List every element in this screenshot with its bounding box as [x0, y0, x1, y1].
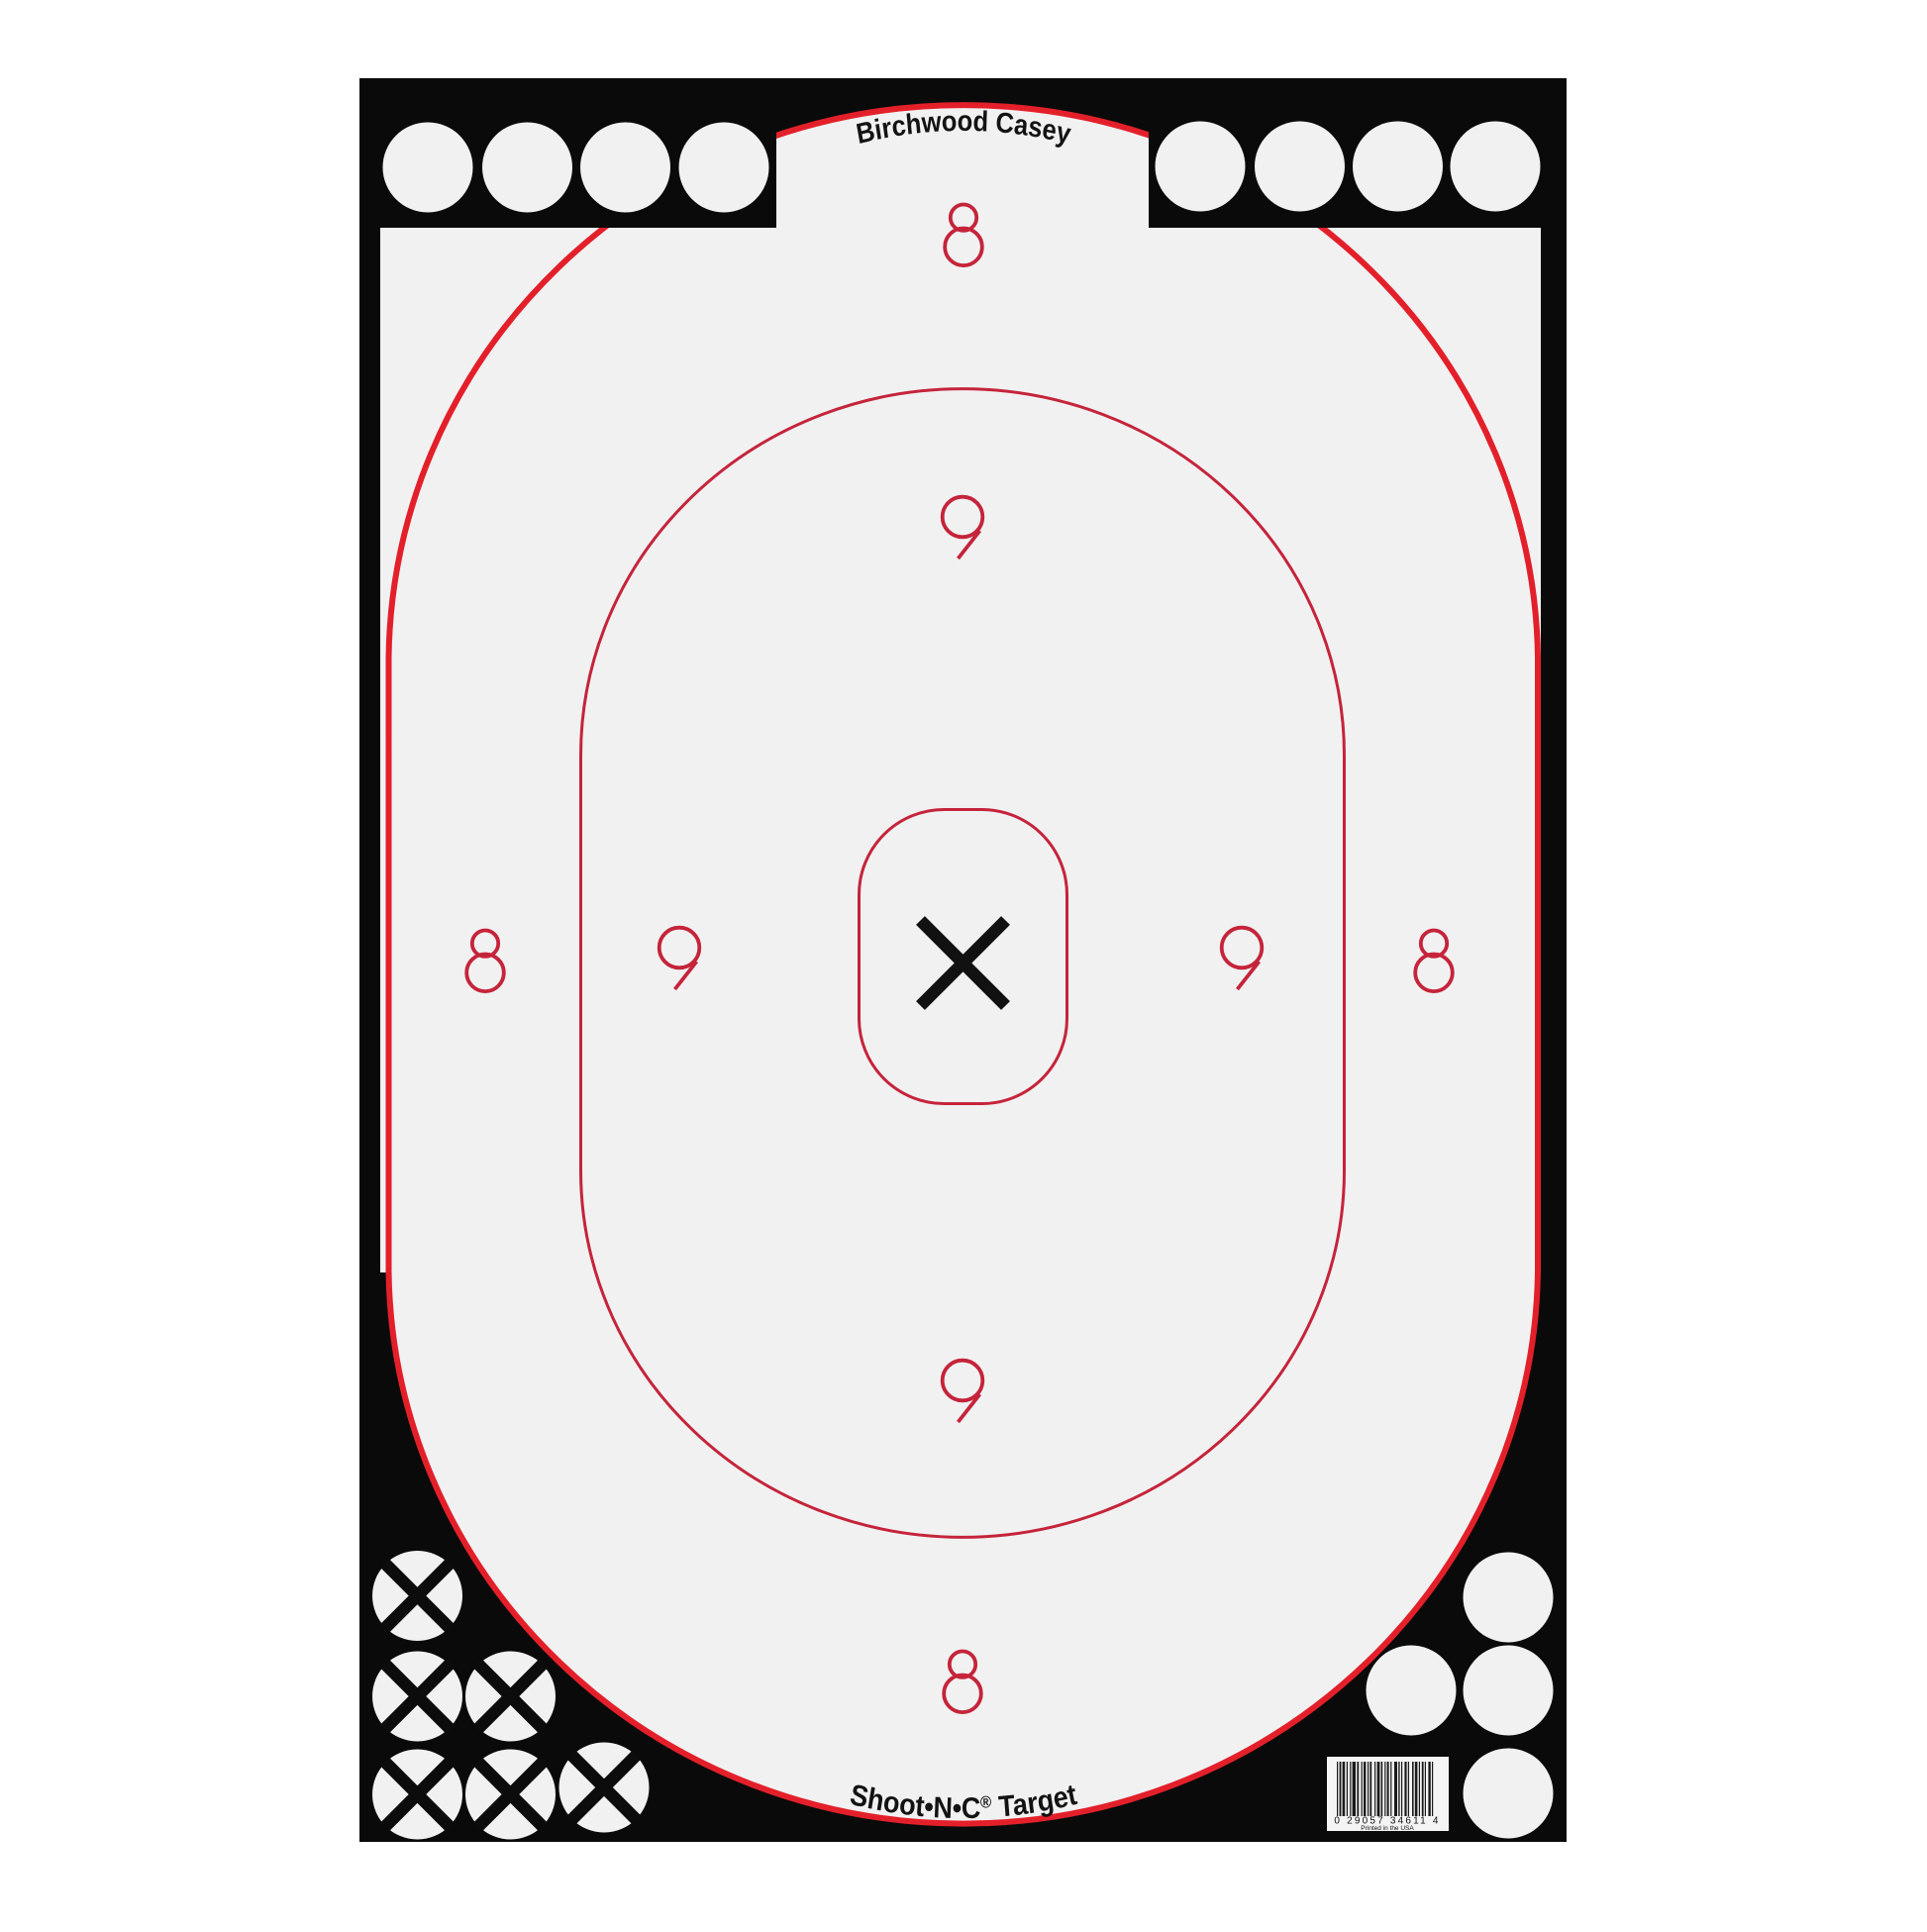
svg-text:Printed in the USA: Printed in the USA: [1361, 1825, 1414, 1832]
